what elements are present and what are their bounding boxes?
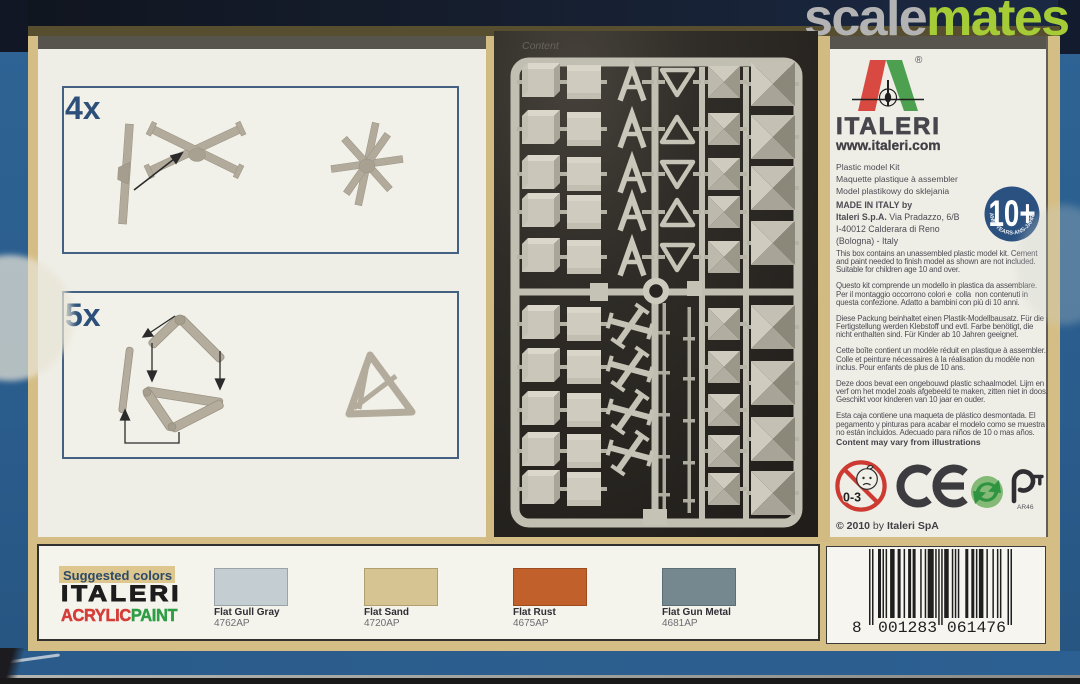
svg-text:Content: Content — [522, 40, 560, 52]
svg-text:AR46: AR46 — [1017, 504, 1034, 511]
svg-text:8: 8 — [852, 619, 862, 637]
svg-text:001283 061476: 001283 061476 — [878, 619, 1006, 637]
svg-text:www.italeri.com: www.italeri.com — [835, 138, 941, 153]
svg-text:ITALERI: ITALERI — [836, 113, 941, 140]
svg-text:0-3: 0-3 — [843, 491, 861, 505]
svg-text:®: ® — [915, 55, 923, 66]
